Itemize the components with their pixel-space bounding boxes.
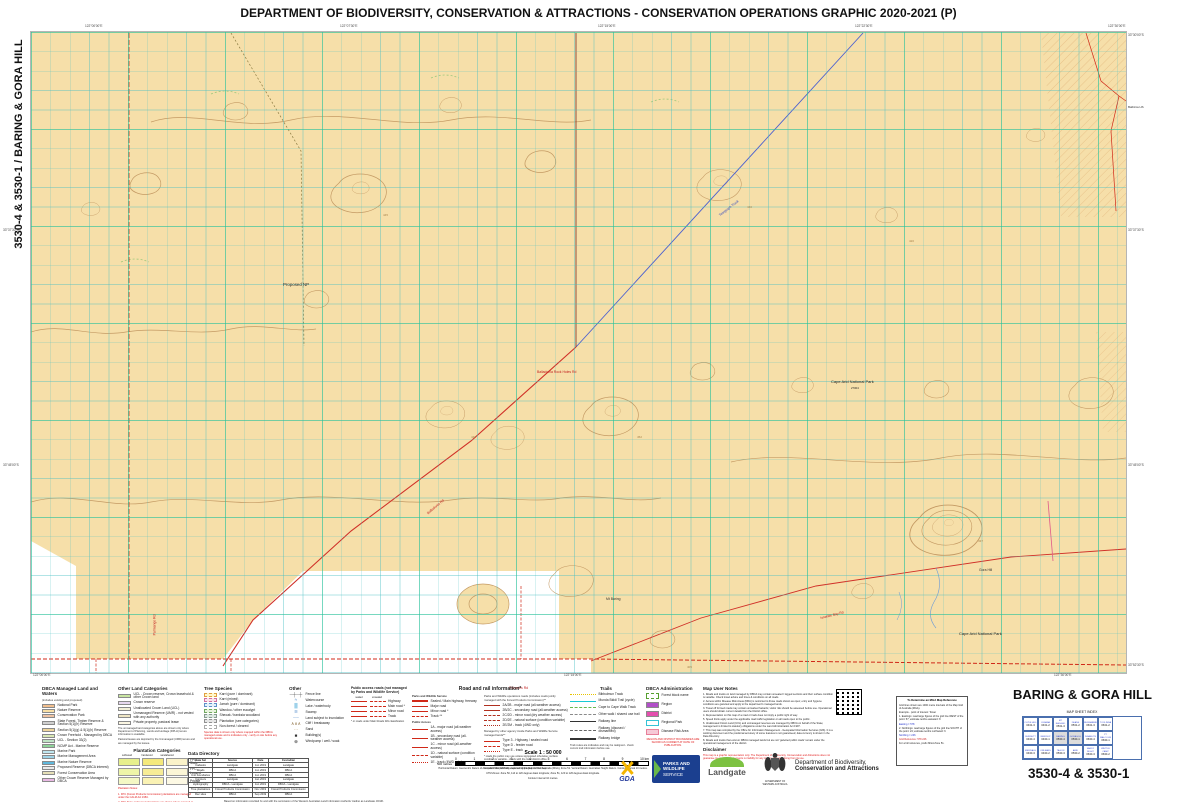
legend-item: Non-forest / cleared xyxy=(204,725,282,729)
legend-item: Other walk / shared use trail xyxy=(570,713,642,717)
longitude-label: 122°30'00"E xyxy=(1054,674,1072,677)
color-swatch xyxy=(42,766,55,770)
pws-leaf-icon xyxy=(654,760,661,778)
sandalwood-swatch xyxy=(166,777,188,785)
longitude-label: 122°30'00"E xyxy=(1108,25,1126,28)
map-feature-label: Parmango Rd xyxy=(154,614,157,635)
legend-item: Other Crown Reserve Managed by DBCA xyxy=(42,777,114,784)
softwood-swatch xyxy=(118,758,140,766)
admin-swatch xyxy=(646,729,659,735)
legend-item: Karri (pure / dominant) xyxy=(204,693,282,697)
trail-line xyxy=(570,707,596,708)
species-swatch xyxy=(204,703,217,707)
legend-item: Bibbulmun Track xyxy=(570,693,642,697)
legend-item: Track ** xyxy=(412,715,478,719)
legend-item: ─┼─┼ Fence line xyxy=(289,693,347,698)
legend-item: ┄┄ Land subject to inundation xyxy=(289,716,347,721)
longitude-label: 122°00'00"E xyxy=(33,674,51,677)
legend-item: Crown Freehold - Managed by DBCA xyxy=(42,734,114,738)
color-swatch xyxy=(42,771,55,775)
legend-item: Wandoo / other eucalypt xyxy=(204,709,282,713)
color-swatch xyxy=(42,755,55,759)
sheet-index-cell: MERIVALE 3430-3 xyxy=(1023,745,1038,759)
legend-item: Main road * xyxy=(351,705,407,709)
longitude-label: 122°22'30"E xyxy=(855,25,873,28)
legend-item: 2E/2M - track (4WD only) xyxy=(484,724,568,728)
admin-swatch xyxy=(646,720,659,726)
legend-item: State Forest, Timber Reserve & Section 5… xyxy=(42,720,114,727)
map-symbol-icon: ─┼─┼ xyxy=(289,693,303,698)
species-swatch xyxy=(204,725,217,729)
longitude-label: 122°15'00"E xyxy=(598,25,616,28)
map-symbol-icon: ≋ xyxy=(289,710,303,715)
color-swatch xyxy=(42,714,55,718)
road-line xyxy=(412,755,428,756)
mga-instruction: For a full reference, prefix MGA Zone 51… xyxy=(899,742,965,745)
map-feature-label: 27004 xyxy=(851,387,859,390)
user-note: 7. This map was compiled by the Office f… xyxy=(703,729,833,738)
map-feature-label: Balladonia Rd xyxy=(427,499,445,515)
legend-dbca-admin: DBCA Administration Forest block name Re… xyxy=(646,686,700,747)
mga-reference-box: To Determine an MGA Map Reference Grid l… xyxy=(896,696,968,766)
color-swatch xyxy=(42,721,55,725)
index-title: MAP SHEET INDEX xyxy=(1022,710,1142,714)
wa-crest-icon xyxy=(762,752,788,776)
map-feature-label: Balbinia HS xyxy=(1128,106,1144,109)
legend-item: Marine Management Area xyxy=(42,755,114,759)
legend-item: Nature Reserve xyxy=(42,709,114,713)
trails-note: Trail routes are indicative and may be r… xyxy=(570,744,642,750)
color-swatch xyxy=(42,734,55,738)
map-feature-label: Proposed NP xyxy=(283,283,309,287)
legend-item: 1A - major road (all-weather access) xyxy=(412,726,478,733)
map-symbol-icon: ··· xyxy=(289,728,303,733)
longitude-label: 122°00'00"E xyxy=(85,25,103,28)
color-swatch xyxy=(118,707,131,711)
trail-line xyxy=(570,694,596,695)
sheet-index-cell: MT RAGGED 3531-3 xyxy=(1053,717,1068,731)
sealed-road-line xyxy=(351,711,367,712)
landgate-logo: Landgate xyxy=(702,757,752,777)
map-feature-label: 405 xyxy=(687,666,692,669)
plantation-note: Plantation Notes: xyxy=(118,787,196,790)
map-feature-label: 445 xyxy=(383,214,388,217)
trail-line xyxy=(570,714,596,715)
road-line xyxy=(412,747,428,748)
plantation-row: FPC State xyxy=(118,758,196,766)
legend-public-roads: Public access roads (not managed by Park… xyxy=(351,686,407,723)
legend-item: 2A/2B - major road (all-weather access) xyxy=(484,704,568,708)
map-feature-label: Israelite Bay Rd xyxy=(820,611,844,620)
sandalwood-swatch xyxy=(166,768,188,776)
legend-item: Private property, pastoral lease xyxy=(118,721,196,725)
sandalwood-swatch xyxy=(166,758,188,766)
latitude-label: 33°52'30"S xyxy=(1128,664,1144,667)
legend-item: Marine Park xyxy=(42,750,114,754)
road-line xyxy=(412,738,428,739)
plantation-note: 1. FPC (Forest Products Commission) plan… xyxy=(118,793,196,799)
mga-instruction: Grid Reference: 578 246 xyxy=(899,738,965,741)
legend-item: ··· Sand xyxy=(289,728,347,733)
legend-tree-species: Tree Species Karri (pure / dominant) Kar… xyxy=(204,686,282,741)
crest-caption: GOVERNMENT OFWESTERN AUSTRALIA xyxy=(758,781,792,787)
species-swatch xyxy=(204,698,217,702)
legend-item: Disease Risk Area xyxy=(646,729,700,735)
legend-item: █ Lake / waterbody xyxy=(289,704,347,709)
sheet-index-cell: CLYDE HILL 3431-3 xyxy=(1023,717,1038,731)
pws-logo-text: PARKS ANDWILDLIFESERVICE xyxy=(663,761,690,777)
map-symbol-icon: ■ xyxy=(289,734,303,739)
legend-item: Crown reserve xyxy=(118,701,196,705)
unsealed-road-line xyxy=(370,706,386,707)
gda-cross-icon xyxy=(618,760,636,776)
unsealed-road-line xyxy=(370,701,386,702)
sealed-road-line xyxy=(351,706,367,707)
qr-code xyxy=(836,689,862,715)
species-swatch xyxy=(204,693,217,697)
legend-item: Minor road * xyxy=(412,710,478,714)
legend-item: Section 5(1)(g) & 5(1)(h) Reserve xyxy=(42,728,114,732)
sealed-road-line xyxy=(351,716,367,717)
sheet-index-cell: BURDETT 3430-4 xyxy=(1023,731,1038,745)
legend-item: ■ Building(s) xyxy=(289,734,347,739)
legend-dbca-lands: DBCA Managed Land and Waters (includes e… xyxy=(42,686,114,785)
sheet-index-cell: BURNABBIE 3631-3 xyxy=(1083,717,1098,731)
sheet-index-cell: WATTLE CAMP 3630-2 xyxy=(1098,745,1113,759)
legend-note: Pastoral leases are depicted by the Unma… xyxy=(118,738,196,744)
legend-item: Highway xyxy=(351,700,407,704)
legend-note: The unmanaged land categories above are … xyxy=(118,727,196,737)
color-swatch xyxy=(42,744,55,748)
unsealed-road-line xyxy=(370,711,386,712)
legend-item: Karri (mixed) xyxy=(204,698,282,702)
road-line xyxy=(412,700,428,702)
public-roads-note: * or roads under Main Roads WA classific… xyxy=(351,720,407,723)
admin-swatch xyxy=(646,693,659,699)
legend-item: NCMP Act - Marine Reserve xyxy=(42,744,114,748)
legend-item: ≋ Swamp xyxy=(289,710,347,715)
color-swatch xyxy=(42,739,55,743)
sheet-index-cell: GORA HILL 3530-1 xyxy=(1068,731,1083,745)
legend-item: Railway line xyxy=(570,720,642,724)
sheet-index-cell: TOOLINNA 3631-2 xyxy=(1098,717,1113,731)
color-swatch xyxy=(42,704,55,708)
department-logo-text: Department of Biodiversity, Conservation… xyxy=(795,760,879,772)
legend-item: Railway (disused / dismantled) xyxy=(570,727,642,734)
sheet-name: BARING & GORA HILL xyxy=(1013,687,1152,702)
legend-item: Forest block name xyxy=(646,693,700,699)
mga-instruction: 1. Eastings: read large figures of the g… xyxy=(899,715,965,721)
road-line xyxy=(412,729,428,730)
color-swatch xyxy=(42,709,55,713)
map-feature-label: 440 xyxy=(747,206,752,209)
sheet-index-cell: BARING 3530-4 xyxy=(1053,731,1068,745)
hardwood-swatch xyxy=(142,768,164,776)
dd-row: Rec sites DBCA Sep 2019 DBCA xyxy=(189,792,309,797)
road-line xyxy=(484,741,500,742)
road-line xyxy=(412,711,428,712)
map-feature-label: Gora Hill xyxy=(979,569,992,572)
road-line xyxy=(412,762,428,763)
map-user-notes: Map User Notes 1. Roads and tracks on la… xyxy=(703,686,833,761)
sealed-road-line xyxy=(351,701,367,702)
species-note: Species data is shown only where mapped … xyxy=(204,731,282,741)
longitude-label: 122°07'30"E xyxy=(340,25,358,28)
map-feature-label: Balladonia Rock Holes Rd xyxy=(537,371,576,374)
softwood-swatch xyxy=(118,768,140,776)
latitude-label: 33°45'00"S xyxy=(3,464,19,467)
legend-item: 2C/2D - minor road (dry weather access) xyxy=(484,714,568,718)
legend-item: UCL - Section 33(2) xyxy=(42,739,114,743)
user-note: 2. Access within Disease Risk Areas (DRA… xyxy=(703,700,833,706)
map-feature-label: 452 xyxy=(637,436,642,439)
road-line xyxy=(484,746,500,747)
sheet-index-cell: ORLEANS 3430-2 xyxy=(1038,745,1053,759)
map-symbol-icon: █ xyxy=(289,704,303,709)
mga-instruction: Grid lines shown are 1000 metre interval… xyxy=(899,704,965,710)
color-swatch xyxy=(118,721,131,725)
scale-left-label: 500 metres xyxy=(437,762,452,766)
road-line xyxy=(484,715,500,716)
legend-item: UCL - Crown reserve, Crown leasehold & o… xyxy=(118,693,196,700)
legend-item: Proposed Reserve (DBCA interest) xyxy=(42,766,114,770)
legend-item: Track xyxy=(351,715,407,719)
color-swatch xyxy=(118,714,131,718)
admin-swatch xyxy=(646,702,659,708)
road-line xyxy=(484,725,500,726)
admin-note: REGION AND DISTRICT BOUNDARIES ARE SHOWN… xyxy=(646,738,700,748)
map-symbol-icon: ⊕ xyxy=(289,740,303,745)
plantation-col-headers: softwoodhardwoodsandalwood xyxy=(118,754,196,757)
trail-line xyxy=(570,730,596,731)
mga-instruction: Example - point of interest: Tower xyxy=(899,711,965,714)
latitude-label: 33°37'30"S xyxy=(1128,229,1144,232)
legend-item: Railway bridge xyxy=(570,737,642,741)
map-sheet-page: DEPARTMENT OF BIODIVERSITY, CONSERVATION… xyxy=(0,0,1197,802)
legend-item: Major road xyxy=(412,705,478,709)
legend-item: 2B/2C - secondary road (all-weather acce… xyxy=(484,709,568,713)
legend-item: Regional Park xyxy=(646,720,700,726)
map-feature-label: Telegraph Track xyxy=(719,200,740,218)
legend-other-lands: Other Land Categories UCL - Crown reserv… xyxy=(118,686,196,802)
sheet-numbers: 3530-4 & 3530-1 xyxy=(1028,766,1129,781)
user-note: 1. Roads and tracks on land managed by D… xyxy=(703,693,833,699)
mga-instruction: Northing = 246 xyxy=(899,734,965,737)
road-line xyxy=(484,710,500,711)
user-note: 5. Speed limits apply under the applicab… xyxy=(703,718,833,721)
sheet-index-cell: TAGON 3530-3 xyxy=(1053,745,1068,759)
side-sheet-label: 3530-4 & 3530-1 / BARING & GORA HILL xyxy=(13,29,25,259)
legend-item: Sheoak / banksia woodland xyxy=(204,714,282,718)
legend-trails: Trails Bibbulmun Track Munda Biddi Trail… xyxy=(570,686,642,750)
mga-box-title: To Determine an MGA Map Reference xyxy=(899,699,965,702)
road-line xyxy=(484,720,500,721)
map-symbol-icon: ┄┄ xyxy=(289,716,303,721)
parks-wildlife-logo: PARKS ANDWILDLIFESERVICE xyxy=(652,755,700,783)
legend-item: Marine Nature Reserve xyxy=(42,761,114,765)
data-directory-table: Data SetSourceDateCustodian Cadastre Lan… xyxy=(188,758,309,798)
sheet-index-cell: SANDY BIGHT 3630-3 xyxy=(1083,745,1098,759)
legend-item: Conservation Park xyxy=(42,714,114,718)
legend-item: ⊕ Windpump / well / soak xyxy=(289,740,347,745)
trail-line xyxy=(570,738,596,740)
legend-item: ∧∧∧ Cliff / breakaway xyxy=(289,722,347,727)
road-line xyxy=(484,705,500,706)
species-swatch xyxy=(204,719,217,723)
legend-item: National Park xyxy=(42,704,114,708)
sheet-index-cell: ISRAELITE 3630-4 xyxy=(1083,731,1098,745)
longitude-label: 122°15'00"E xyxy=(564,674,582,677)
legend-item: Unallocated Crown Land (UCL) xyxy=(118,707,196,711)
legend-item: 1B - secondary road (all-weather access) xyxy=(412,735,478,742)
unsealed-road-line xyxy=(370,716,386,717)
color-swatch xyxy=(42,728,55,732)
color-swatch xyxy=(42,778,55,782)
legend-item: Plantation (see categories) xyxy=(204,719,282,723)
species-swatch xyxy=(204,709,217,713)
color-swatch xyxy=(42,750,55,754)
trail-line xyxy=(570,721,596,722)
softwood-swatch xyxy=(118,777,140,785)
sheet-index-cell: JUNANA 3431-2 xyxy=(1038,717,1053,731)
map-feature-label: Cape Arid National Park xyxy=(959,632,1002,636)
legend-item: Jarrah (pure / dominant) xyxy=(204,703,282,707)
map-feature-label: 420 xyxy=(909,240,914,243)
wa-crest: GOVERNMENT OFWESTERN AUSTRALIA xyxy=(758,752,792,787)
legend-item: Minor road xyxy=(351,710,407,714)
road-line xyxy=(412,716,428,717)
hardwood-swatch xyxy=(142,777,164,785)
legend-other-symbols: Other ─┼─┼ Fence line ≈ Watercourse █ La… xyxy=(289,686,347,746)
map-sheet-index: MAP SHEET INDEX CLYDE HILL 3431-3 JUNANA… xyxy=(1022,710,1142,760)
user-note: 6. Unallocated Crown Land (UCL) and unma… xyxy=(703,722,833,728)
road-line xyxy=(412,706,428,707)
sheet-index-cell: ARID 3530-2 xyxy=(1068,745,1083,759)
legend-item: Sealed / Main highway, freeway xyxy=(412,700,478,704)
legend-section-subtitle: (includes existing and proposed) xyxy=(42,698,114,702)
landgate-wave-icon xyxy=(710,757,744,767)
sheet-index-cell: PT MALCOLM 3630-1 xyxy=(1098,731,1113,745)
mga-instruction: Easting = 578 xyxy=(899,723,965,726)
data-directory: Data Directory Data SetSourceDateCustodi… xyxy=(188,751,420,802)
color-swatch xyxy=(118,694,131,698)
user-note: 3. Travel off formed roads may contain u… xyxy=(703,707,833,713)
map-feature-label: Cape Arid National Park xyxy=(831,380,874,384)
user-note: 8. Roads and tracks that exist on DBCA m… xyxy=(703,739,833,745)
admin-swatch xyxy=(646,711,659,717)
legend-item: Munda Biddi Trail (cycle) xyxy=(570,699,642,703)
gda-logo: GDA xyxy=(612,760,642,783)
map-labels: Proposed NP Balladonia Rock Holes Rd Cap… xyxy=(31,32,1126,673)
latitude-label: 33°37'30"S xyxy=(3,229,19,232)
plantation-row: FPC Leased xyxy=(118,768,196,776)
hardwood-swatch xyxy=(142,758,164,766)
sheet-index-grid: CLYDE HILL 3431-3 JUNANA 3431-2 MT RAGGE… xyxy=(1022,716,1142,760)
user-note: 4. Representation on this map of a road … xyxy=(703,714,833,717)
legend-item: Type D - feeder road xyxy=(484,744,568,748)
map-symbol-icon: ∧∧∧ xyxy=(289,722,303,727)
map-canvas: Proposed NP Balladonia Rock Holes Rd Cap… xyxy=(30,31,1127,674)
legend-item: Region xyxy=(646,702,700,708)
color-swatch xyxy=(42,761,55,765)
latitude-label: 33°30'00"S xyxy=(1128,34,1144,37)
trail-line xyxy=(570,701,596,702)
map-feature-label: 437 xyxy=(978,540,983,543)
plantation-row: Private xyxy=(118,777,196,785)
legend-section-title: DBCA Managed Land and Waters xyxy=(42,686,114,696)
legend-item: Cape to Cape Walk Track xyxy=(570,706,642,710)
legend-item: Forest Conservation Area xyxy=(42,771,114,775)
mga-instruction: 2. Northings: read large figures of the … xyxy=(899,727,965,733)
page-title: DEPARTMENT OF BIODIVERSITY, CONSERVATION… xyxy=(0,6,1197,20)
legend-item: Unmanaged Reserve (UMR) - not vested wit… xyxy=(118,712,196,719)
color-swatch xyxy=(118,701,131,705)
sheet-index-cell: NERIDUP 3430-1 xyxy=(1038,731,1053,745)
latitude-label: 33°45'00"S xyxy=(1128,464,1144,467)
map-feature-label: Mt Baring xyxy=(606,598,621,601)
sheet-index-cell: DEANS 3531-2 xyxy=(1068,717,1083,731)
species-swatch xyxy=(204,714,217,718)
legend-item: District xyxy=(646,711,700,717)
legend-item: 2D/2E - natural surface (condition varia… xyxy=(484,719,568,723)
map-feature-label: 448 xyxy=(471,436,476,439)
